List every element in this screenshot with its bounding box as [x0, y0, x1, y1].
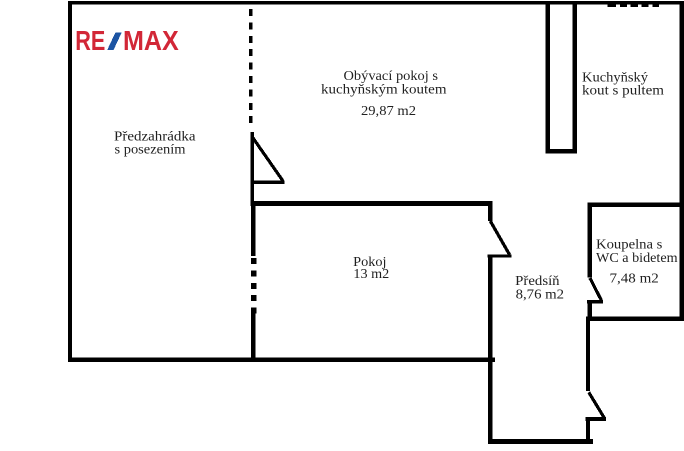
- svg-text:MAX: MAX: [123, 25, 179, 57]
- svg-text:RE: RE: [75, 25, 105, 56]
- svg-text:13 m2: 13 m2: [353, 266, 389, 281]
- svg-text:kout s pultem: kout s pultem: [582, 83, 665, 98]
- svg-text:7,48 m2: 7,48 m2: [610, 270, 659, 285]
- svg-text:WC a bidetem: WC a bidetem: [596, 250, 678, 265]
- svg-text:s posezením: s posezením: [115, 142, 187, 157]
- svg-text:kuchyňským koutem: kuchyňským koutem: [321, 81, 447, 96]
- svg-text:29,87 m2: 29,87 m2: [361, 103, 416, 118]
- svg-text:8,76 m2: 8,76 m2: [516, 287, 565, 302]
